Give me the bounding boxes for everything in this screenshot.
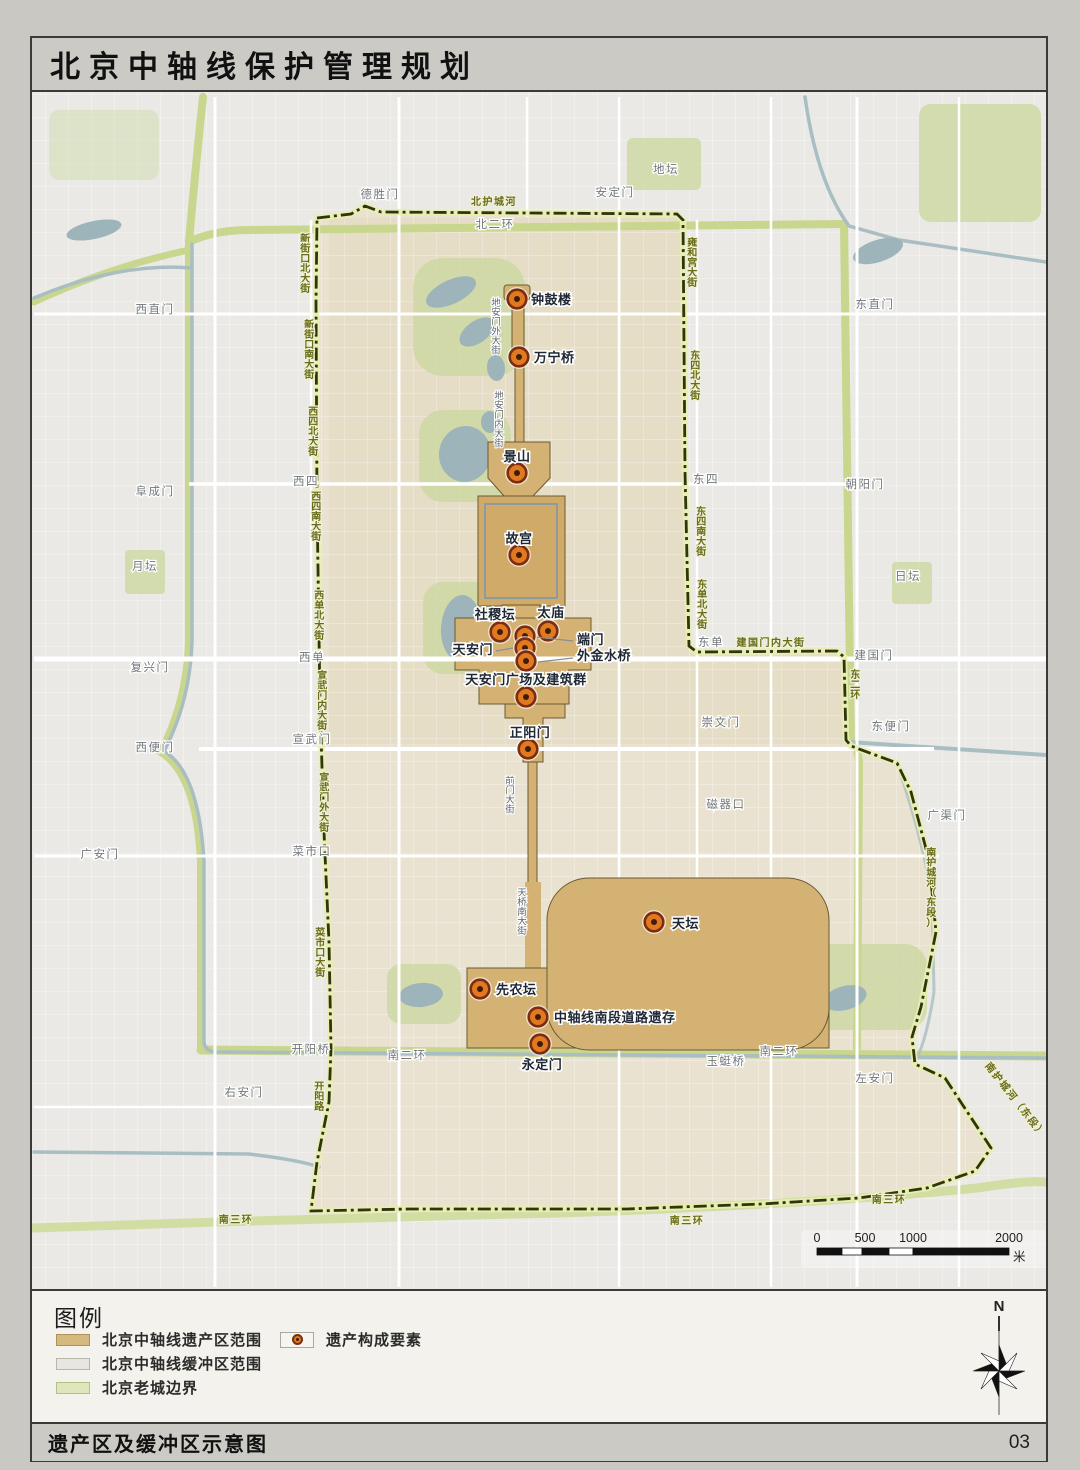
legend-item-oldcity: 北京老城边界	[56, 1379, 262, 1396]
map-label: 南二环	[760, 1044, 799, 1058]
map-label: 广安门	[81, 847, 120, 861]
legend-heading: 图例	[54, 1299, 104, 1333]
site-label: 太庙	[536, 605, 564, 620]
map-label: 宣武门内大街	[316, 669, 329, 732]
map-label: 阜成门	[136, 484, 175, 498]
scale-bar: 050010002000米	[801, 1230, 1046, 1268]
map-label: 南三环	[219, 1213, 254, 1226]
map-label: 地安门内大街	[494, 390, 504, 450]
map-label: 新街口北大街	[299, 232, 312, 295]
site-label: 故宫	[505, 531, 532, 546]
site-label: 中轴线南段道路遗存	[554, 1010, 676, 1025]
map-label: 北二环	[476, 218, 515, 231]
legend-area-items: 北京中轴线遗产区范围 北京中轴线缓冲区范围 北京老城边界	[56, 1331, 262, 1396]
site-label: 先农坛	[496, 982, 537, 997]
map-label: 东便门	[872, 719, 911, 733]
site-label: 钟鼓楼	[531, 292, 572, 307]
north-arrow: N	[970, 1295, 1028, 1419]
heritage-area-swatch	[56, 1334, 90, 1346]
buffer-area-swatch	[56, 1358, 90, 1370]
north-label: N	[994, 1298, 1005, 1315]
legend-item-label: 遗产构成要素	[326, 1329, 422, 1350]
map-label: 西四	[293, 476, 319, 488]
map-label: 南三环	[670, 1214, 705, 1227]
map-label: 地坛	[653, 163, 679, 176]
old-city-swatch	[56, 1382, 90, 1394]
scale-tick: 1000	[899, 1231, 927, 1245]
page: { "title": "北京中轴线保护管理规划", "footer": { "c…	[0, 0, 1080, 1470]
map-label: 雍和宫大街	[686, 236, 699, 289]
map-label: 安定门	[596, 185, 635, 199]
scale-tick: 500	[855, 1231, 876, 1245]
page-title: 北京中轴线保护管理规划	[50, 42, 479, 86]
map-label: 开阳桥	[292, 1043, 331, 1056]
site-label: 天安门广场及建筑群	[465, 672, 587, 687]
map-label: 开阳路	[314, 1081, 326, 1113]
site-label: 端门	[577, 632, 604, 647]
map-label: 玉蜓桥	[707, 1054, 746, 1068]
map-label: 南护城河（东段）	[926, 846, 938, 929]
site-label: 天坛	[672, 916, 699, 931]
map-label: 广渠门	[928, 808, 967, 822]
heritage-site-marker: 景山	[503, 449, 530, 485]
map-label: 东四北大街	[689, 349, 702, 402]
sheet-caption: 遗产区及缓冲区示意图	[48, 1428, 268, 1457]
map-label: 西四北大街	[307, 406, 320, 458]
legend: 图例 北京中轴线遗产区范围 北京中轴线缓冲区范围 北京老城边界 遗产构成要素	[32, 1291, 1046, 1424]
map-label: 建国门内大街	[736, 636, 806, 649]
map-label: 北护城河	[471, 195, 517, 208]
footer: 遗产区及缓冲区示意图 03	[32, 1424, 1046, 1461]
legend-item-label: 北京中轴线缓冲区范围	[102, 1353, 262, 1374]
site-label: 正阳门	[510, 725, 551, 740]
map-label: 建国门	[855, 648, 894, 662]
map-label: 前门大街	[505, 775, 515, 816]
site-label: 外金水桥	[576, 648, 632, 663]
map-label: 崇文门	[702, 715, 741, 729]
map-area: 北护城河新街口北大街新街口南大街西四北大街西四南大街西单北大街宣武门内大街宣武门…	[32, 92, 1046, 1291]
sheet-frame: 北京中轴线保护管理规划	[30, 36, 1048, 1462]
legend-point-item: 遗产构成要素	[280, 1331, 422, 1348]
heritage-element-icon	[280, 1332, 314, 1348]
legend-item-label: 北京中轴线遗产区范围	[102, 1329, 262, 1350]
legend-item-label: 北京老城边界	[102, 1377, 198, 1398]
site-label: 永定门	[521, 1057, 563, 1072]
map-label: 新街口南大街	[303, 318, 316, 381]
legend-item-buffer: 北京中轴线缓冲区范围	[56, 1355, 262, 1372]
map-label: 地安门外大街	[491, 297, 501, 357]
map-label: 左安门	[856, 1071, 895, 1085]
site-label: 万宁桥	[533, 350, 575, 365]
map-label: 东二环	[850, 668, 862, 701]
map-label: 宣武门	[293, 732, 332, 746]
map-label: 复兴门	[131, 660, 170, 674]
map-label: 右安门	[225, 1085, 264, 1099]
map-label: 东直门	[856, 297, 895, 311]
map-label: 南三环	[872, 1193, 907, 1206]
map-label: 天桥南大街	[517, 888, 527, 937]
map-label: 菜市口大街	[314, 926, 327, 979]
scale-unit: 米	[1013, 1250, 1026, 1264]
map-label: 西单	[299, 651, 325, 664]
site-label: 天安门	[452, 642, 493, 657]
scale-tick: 0	[814, 1231, 821, 1245]
map-label: 西四南大街	[310, 491, 323, 543]
map-label: 菜市口	[293, 844, 332, 858]
map-label: 西单北大街	[313, 590, 326, 642]
map-label: 东单北大街	[696, 578, 709, 631]
legend-item-heritage: 北京中轴线遗产区范围	[56, 1331, 262, 1348]
scale-tick: 2000	[995, 1231, 1023, 1245]
map-label: 西直门	[136, 302, 175, 316]
map-label: 东四	[693, 473, 719, 486]
map-label: 德胜门	[361, 187, 400, 201]
map-label: 月坛	[132, 560, 158, 573]
site-label: 景山	[503, 449, 530, 464]
map-label: 日坛	[895, 570, 921, 583]
map-label: 西便门	[136, 740, 175, 754]
heritage-site-marker: 故宫	[505, 531, 532, 567]
map-label: 磁器口	[707, 797, 746, 811]
compass-rose-icon	[973, 1345, 1025, 1397]
map-label: 南二环	[388, 1048, 427, 1062]
site-label: 社稷坛	[474, 607, 516, 622]
page-number: 03	[1009, 1432, 1030, 1454]
map-label: 宣武门外大街	[318, 771, 331, 834]
map-label: 东单	[698, 636, 724, 649]
map-canvas: 北护城河新街口北大街新街口南大街西四北大街西四南大街西单北大街宣武门内大街宣武门…	[32, 92, 1046, 1289]
title-band: 北京中轴线保护管理规划	[32, 38, 1046, 92]
map-label: 朝阳门	[846, 477, 885, 491]
map-label: 东四南大街	[695, 505, 708, 558]
